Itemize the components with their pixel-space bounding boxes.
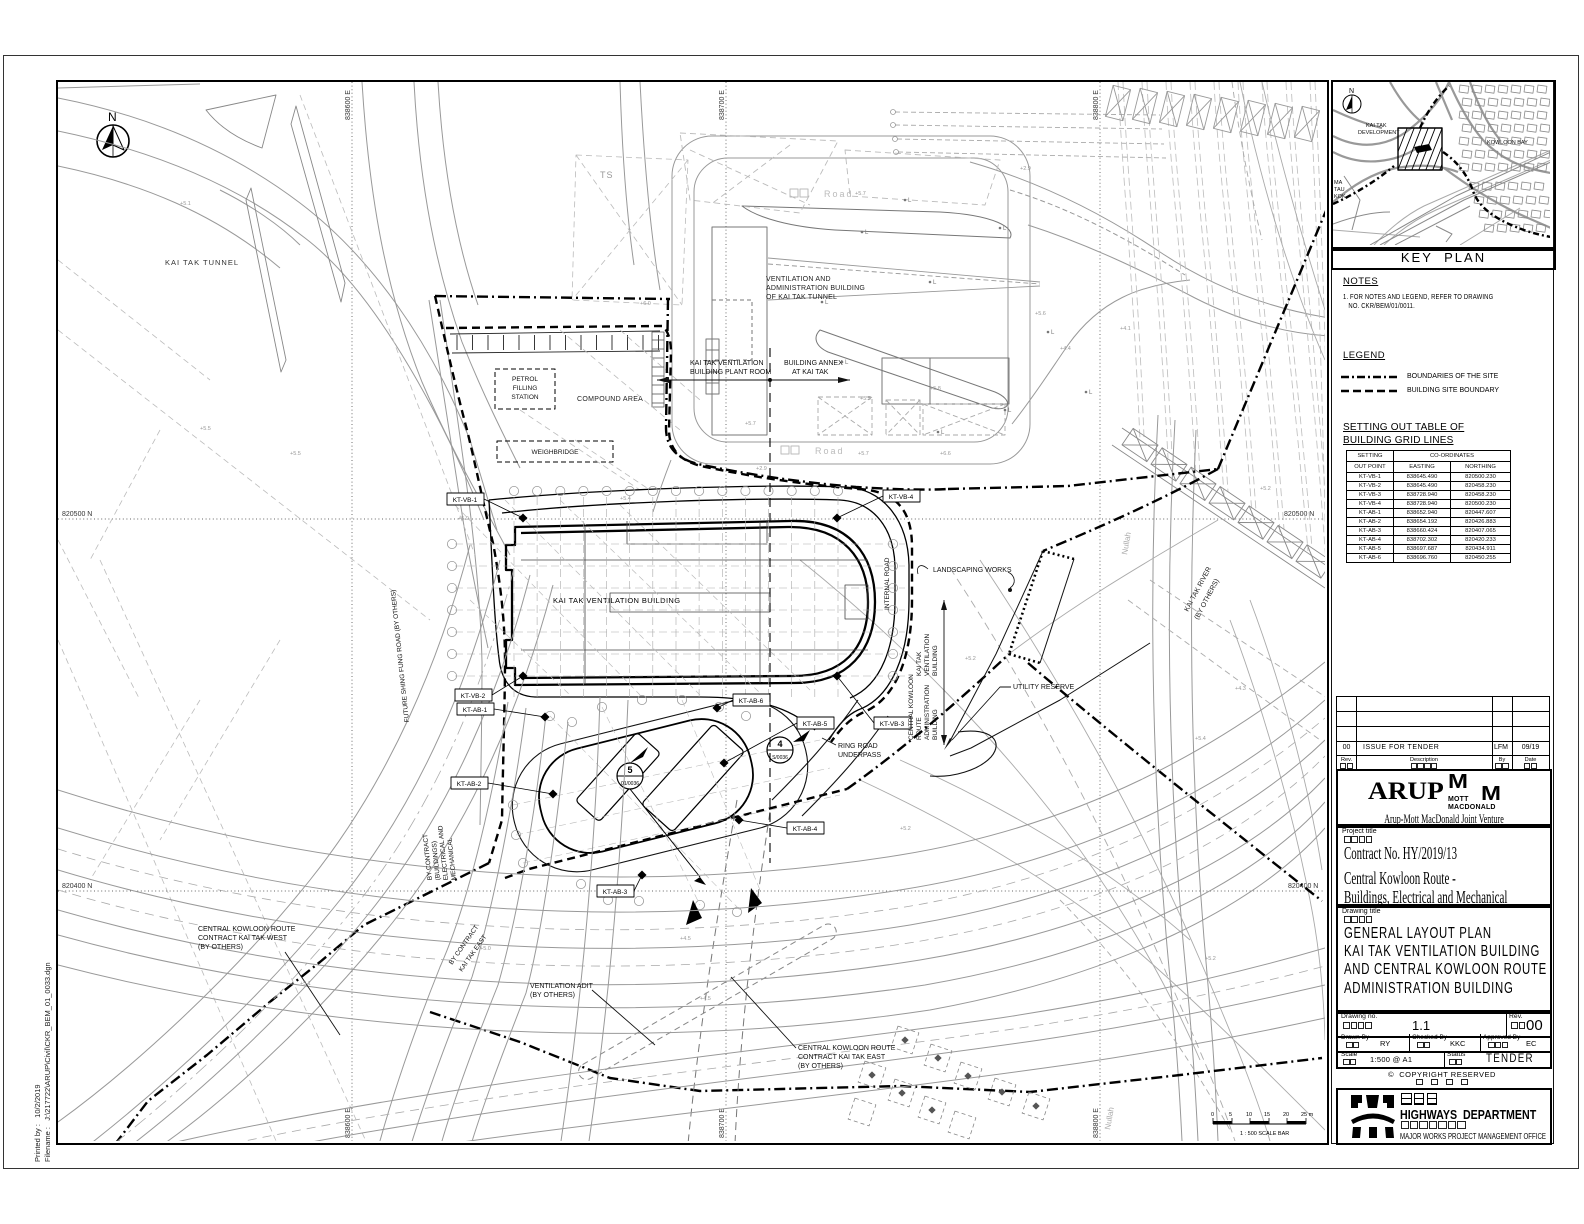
svg-text:+4.4: +4.4 <box>1060 346 1071 352</box>
svg-text:+5.2: +5.2 <box>1205 956 1216 962</box>
svg-text:820500 N: 820500 N <box>62 511 92 518</box>
svg-text:ADMINISTRATION BUILDING: ADMINISTRATION BUILDING <box>766 285 865 292</box>
svg-text:+5.2: +5.2 <box>1260 486 1271 492</box>
svg-text:838700 E: 838700 E <box>719 1108 726 1138</box>
svg-text:TS: TS <box>600 170 614 180</box>
svg-text:L: L <box>845 360 849 366</box>
svg-text:VENTILATION AND: VENTILATION AND <box>766 276 831 283</box>
svg-text:CONTRACT KAI TAK WEST: CONTRACT KAI TAK WEST <box>198 935 288 942</box>
svg-text:KT-VB-4: KT-VB-4 <box>889 494 914 501</box>
svg-text:KT-AB-2: KT-AB-2 <box>457 781 482 788</box>
svg-text:KAI TAK: KAI TAK <box>916 651 923 676</box>
svg-text:+5.5: +5.5 <box>860 396 871 402</box>
svg-text:L: L <box>908 198 912 204</box>
svg-text:820400 N: 820400 N <box>1288 883 1318 890</box>
svg-text:838800 E: 838800 E <box>1093 90 1100 120</box>
svg-text:+2.9: +2.9 <box>1020 166 1031 172</box>
svg-text:L: L <box>1008 408 1012 414</box>
svg-text:+5.7: +5.7 <box>855 191 866 197</box>
svg-text:Nullah: Nullah <box>1103 1106 1116 1130</box>
svg-text:BUILDING: BUILDING <box>932 709 939 740</box>
svg-text:STATION: STATION <box>511 394 539 401</box>
svg-text:+5.1: +5.1 <box>180 201 191 207</box>
svg-text:KT-AB-1: KT-AB-1 <box>463 707 488 714</box>
svg-text:+2.9: +2.9 <box>756 466 767 472</box>
svg-text:KT-VB-2: KT-VB-2 <box>461 693 486 700</box>
svg-text:VENTILATION ADIT: VENTILATION ADIT <box>530 983 594 990</box>
svg-text:+4.3: +4.3 <box>1235 686 1246 692</box>
svg-text:820400 N: 820400 N <box>62 883 92 890</box>
svg-text:BUILDING PLANT ROOM: BUILDING PLANT ROOM <box>690 369 771 376</box>
svg-text:+5.5: +5.5 <box>290 451 301 457</box>
svg-text:+6.0: +6.0 <box>640 301 651 307</box>
svg-text:UNDERPASS: UNDERPASS <box>838 752 881 759</box>
svg-text:+4.5: +4.5 <box>680 936 691 942</box>
svg-text:UTILITY RESERVE: UTILITY RESERVE <box>1013 684 1075 691</box>
svg-text:0: 0 <box>1211 1112 1214 1118</box>
svg-text:L: L <box>933 280 937 286</box>
svg-text:1 : 500 SCALE BAR: 1 : 500 SCALE BAR <box>1240 1131 1289 1137</box>
svg-text:Road: Road <box>824 189 854 199</box>
svg-text:WEIGHBRIDGE: WEIGHBRIDGE <box>532 449 580 456</box>
svg-text:KT-AB-5: KT-AB-5 <box>803 721 828 728</box>
svg-text:+4.5: +4.5 <box>700 996 711 1002</box>
svg-text:+5.4: +5.4 <box>1195 736 1206 742</box>
svg-text:+5.0: +5.0 <box>480 946 491 952</box>
svg-text:+5.1: +5.1 <box>300 981 311 987</box>
svg-text:RING ROAD: RING ROAD <box>838 743 878 750</box>
svg-text:+5.7: +5.7 <box>858 451 869 457</box>
svg-text:S/0036: S/0036 <box>772 755 788 761</box>
svg-text:+5.7: +5.7 <box>745 421 756 427</box>
svg-text:CENTRAL KOWLOON ROUTE: CENTRAL KOWLOON ROUTE <box>798 1045 896 1052</box>
svg-text:ADMINISTRATION: ADMINISTRATION <box>924 685 931 740</box>
svg-text:+5.5: +5.5 <box>200 426 211 432</box>
svg-text:+6.6: +6.6 <box>940 451 951 457</box>
svg-text:KAI TAK VENTILATION: KAI TAK VENTILATION <box>690 360 764 367</box>
svg-text:COMPOUND AREA: COMPOUND AREA <box>577 396 643 403</box>
svg-text:L: L <box>1051 330 1055 336</box>
svg-text:CONTRACT KAI TAK EAST: CONTRACT KAI TAK EAST <box>798 1054 886 1061</box>
svg-text:PETROL: PETROL <box>512 376 538 383</box>
svg-text:5: 5 <box>627 765 632 775</box>
svg-text:VENTILATION: VENTILATION <box>924 634 931 676</box>
svg-text:838600 E: 838600 E <box>345 90 352 120</box>
svg-text:LANDSCAPING WORKS: LANDSCAPING WORKS <box>933 567 1012 574</box>
svg-text:FUTURE SHING FUNG ROAD (BY OTH: FUTURE SHING FUNG ROAD (BY OTHERS) <box>390 589 411 722</box>
svg-text:5: 5 <box>1229 1112 1232 1118</box>
svg-text:Nullah: Nullah <box>1120 531 1133 555</box>
svg-text:KT-VB-3: KT-VB-3 <box>880 721 905 728</box>
svg-text:BUILDING ANNEX: BUILDING ANNEX <box>784 360 843 367</box>
svg-text:KT-AB-6: KT-AB-6 <box>739 698 764 705</box>
svg-text:15: 15 <box>1264 1112 1270 1118</box>
svg-text:INTERNAL ROAD: INTERNAL ROAD <box>884 557 891 610</box>
svg-text:KT-AB-4: KT-AB-4 <box>793 826 818 833</box>
svg-text:KAI TAK TUNNEL: KAI TAK TUNNEL <box>165 258 239 267</box>
svg-text:(BY OTHERS): (BY OTHERS) <box>530 992 575 999</box>
svg-text:838600 E: 838600 E <box>345 1108 352 1138</box>
svg-text:BUILDING: BUILDING <box>932 645 939 676</box>
svg-text:838700 E: 838700 E <box>719 90 726 120</box>
svg-text:+5.2: +5.2 <box>900 826 911 832</box>
svg-text:10: 10 <box>1246 1112 1252 1118</box>
svg-text:KT-VB-1: KT-VB-1 <box>453 497 478 504</box>
svg-text:25 m: 25 m <box>1301 1112 1314 1118</box>
svg-text:CENTRAL KOWLOON ROUTE: CENTRAL KOWLOON ROUTE <box>198 926 296 933</box>
svg-text:L: L <box>865 230 869 236</box>
svg-text:(BY OTHERS): (BY OTHERS) <box>198 944 243 951</box>
svg-text:+5.9: +5.9 <box>458 516 469 522</box>
svg-text:4: 4 <box>777 739 782 749</box>
svg-text:+4.1: +4.1 <box>1120 326 1131 332</box>
svg-text:+5.8: +5.8 <box>930 386 941 392</box>
svg-text:+5.4: +5.4 <box>620 496 631 502</box>
svg-text:L: L <box>941 430 945 436</box>
svg-text:L: L <box>1089 390 1093 396</box>
svg-text:Road: Road <box>815 446 845 456</box>
svg-text:+5.6: +5.6 <box>1035 311 1046 317</box>
svg-text:+5.2: +5.2 <box>965 656 976 662</box>
svg-text:ROUTE: ROUTE <box>916 717 923 740</box>
svg-text:838800 E: 838800 E <box>1093 1108 1100 1138</box>
svg-text:CENTRAL KOWLOON: CENTRAL KOWLOON <box>908 674 915 740</box>
svg-text:FILLING: FILLING <box>513 385 538 392</box>
svg-text:20: 20 <box>1283 1112 1289 1118</box>
svg-text:(BY OTHERS): (BY OTHERS) <box>798 1063 843 1070</box>
svg-text:KT-AB-3: KT-AB-3 <box>603 889 628 896</box>
svg-text:AT KAI TAK: AT KAI TAK <box>792 369 829 376</box>
